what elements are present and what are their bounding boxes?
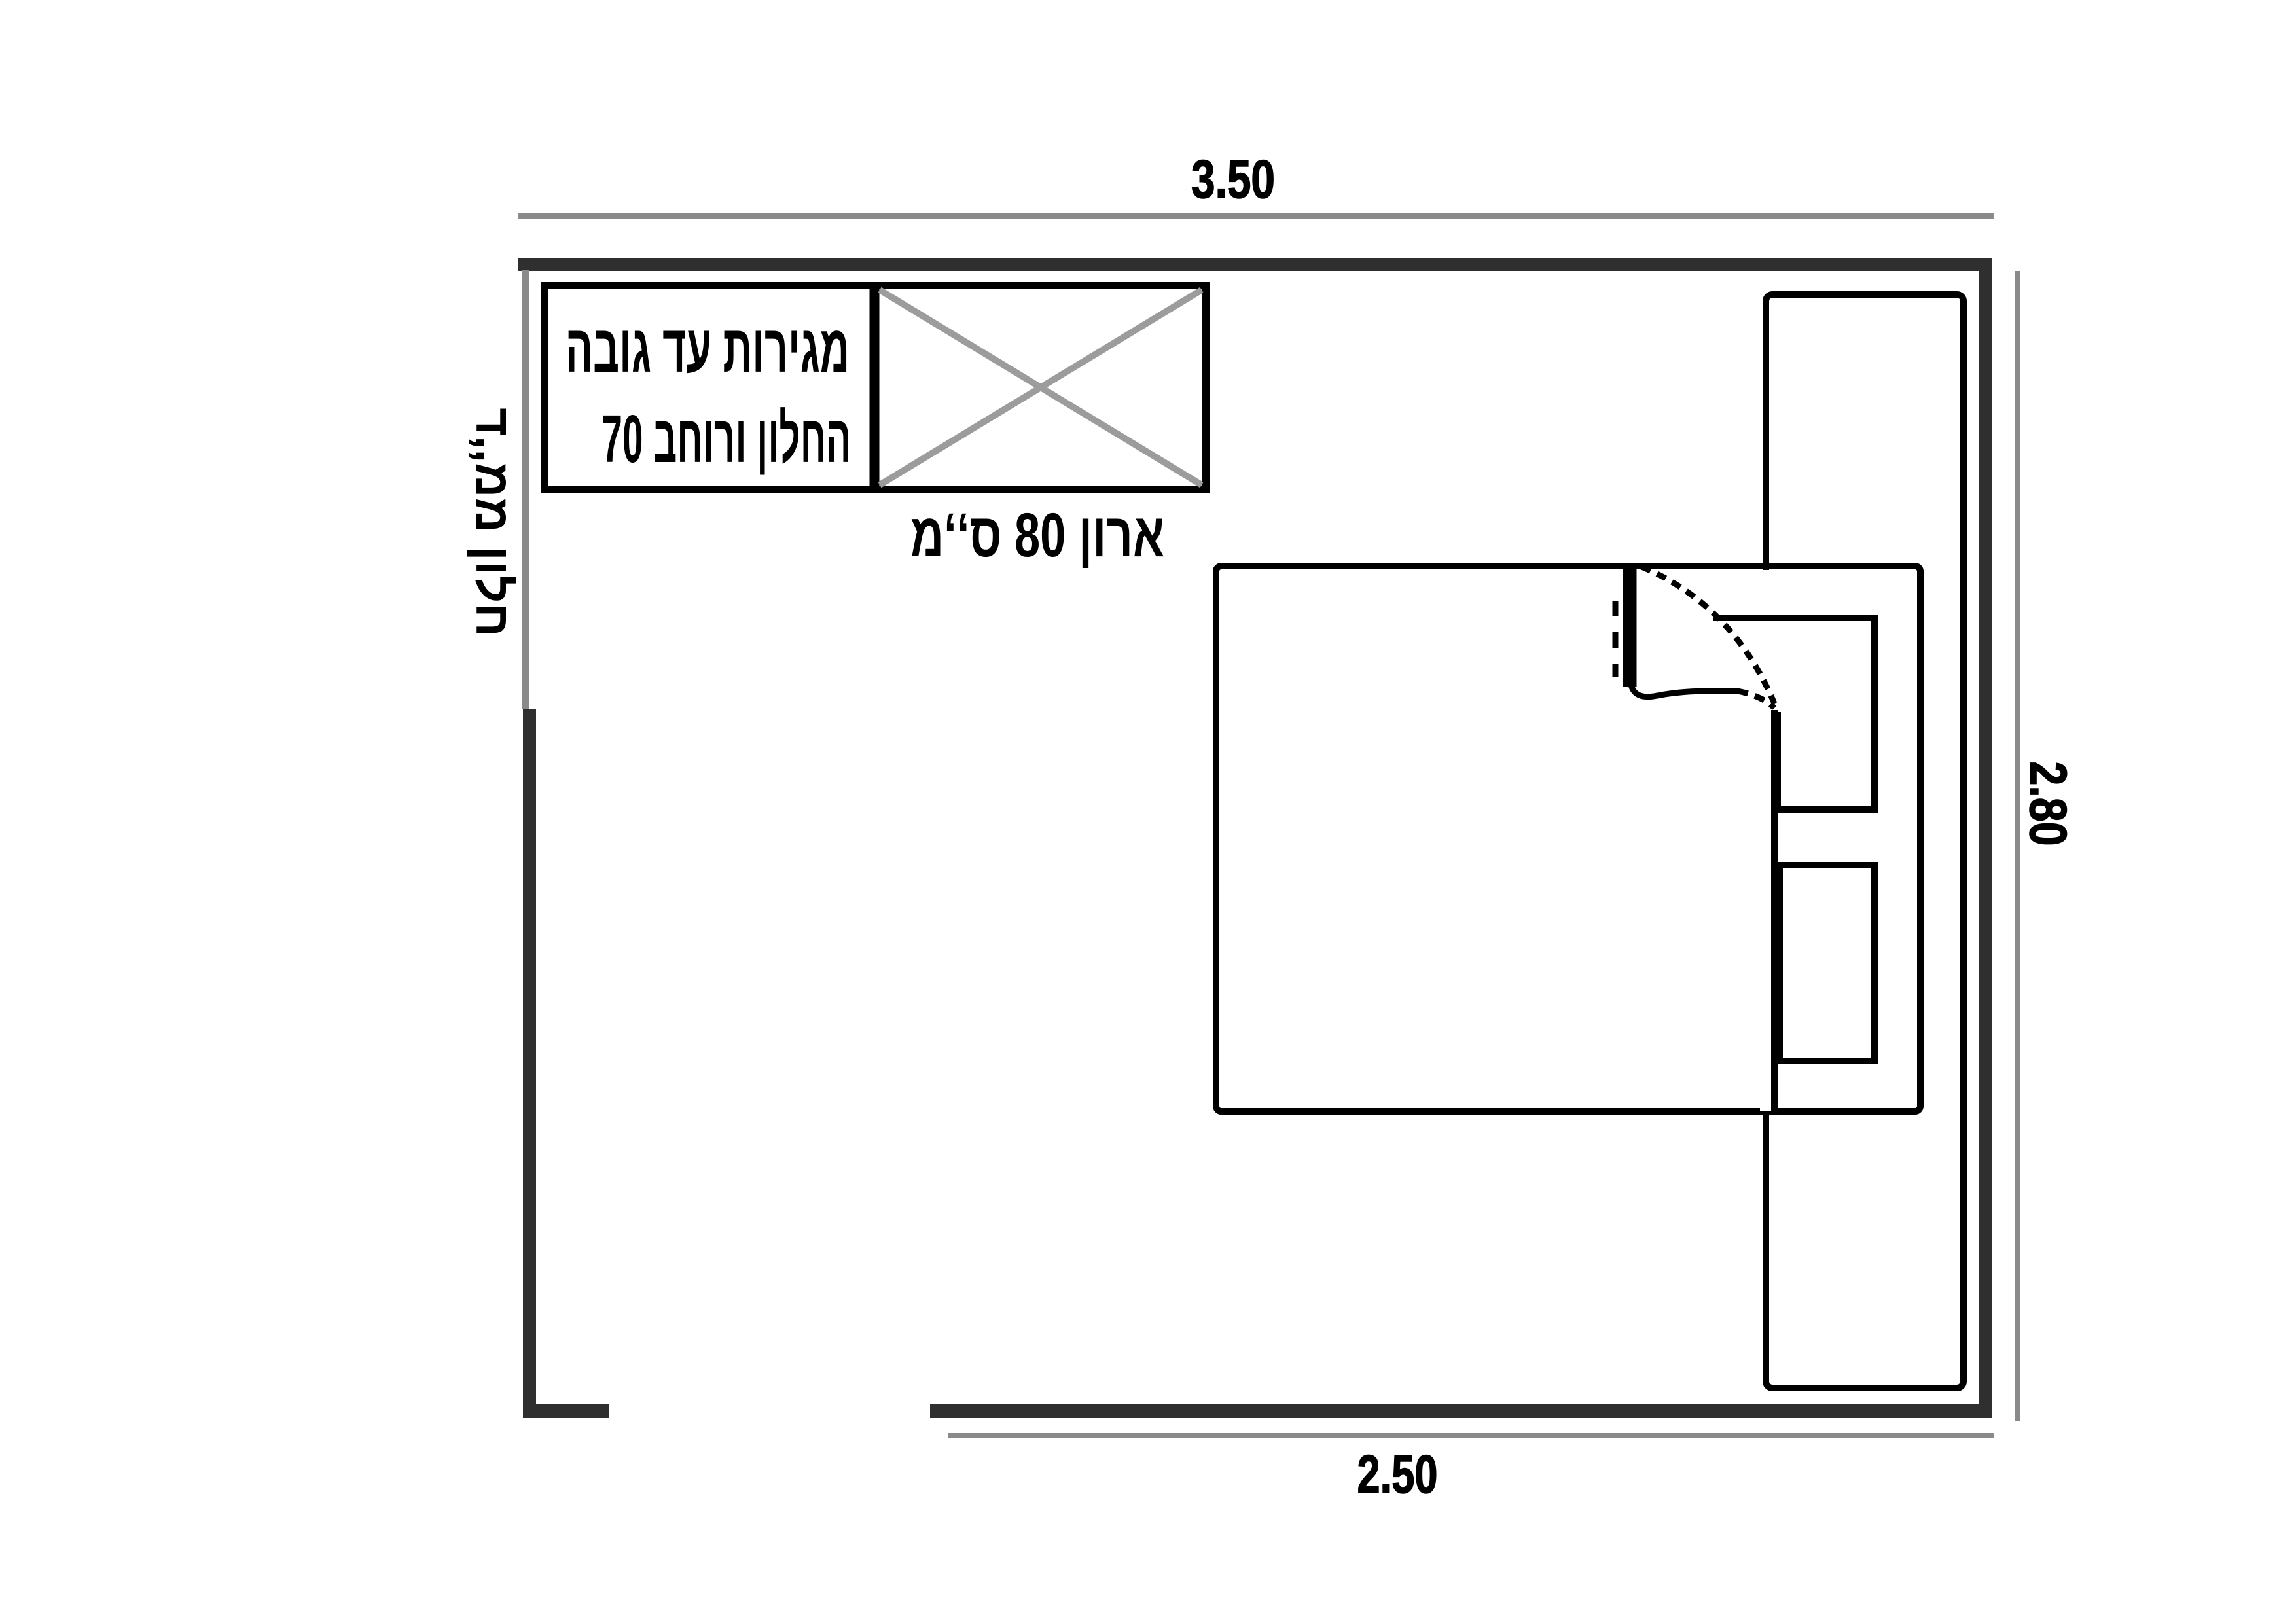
svg-text:2.50: 2.50 (1357, 1444, 1438, 1505)
svg-text:2.80: 2.80 (2019, 762, 2077, 846)
svg-text:מגירות עד גובה: מגירות עד גובה (565, 311, 850, 386)
svg-text:חלון ממ,,ד: חלון ממ,,ד (466, 408, 520, 637)
svg-text:3.50: 3.50 (1191, 149, 1275, 209)
svg-text:החלון ורוחב 70: החלון ורוחב 70 (602, 401, 852, 476)
svg-text:ארון 80 ס‘‘מ: ארון 80 ס‘‘מ (910, 501, 1164, 570)
